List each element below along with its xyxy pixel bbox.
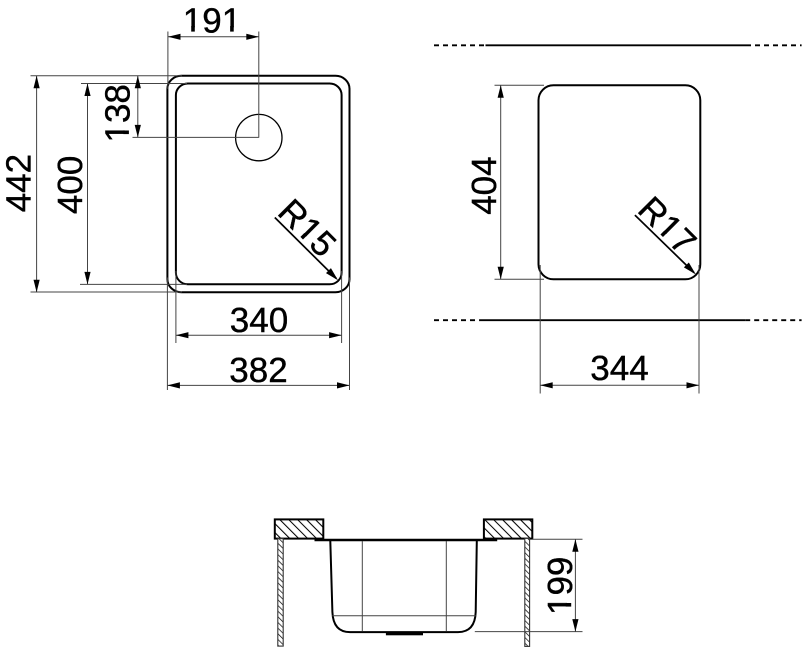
svg-text:442: 442	[0, 154, 39, 212]
svg-text:199: 199	[541, 557, 580, 615]
svg-text:404: 404	[465, 156, 504, 214]
svg-text:344: 344	[590, 349, 648, 388]
svg-text:138: 138	[99, 84, 138, 142]
svg-text:382: 382	[229, 351, 287, 390]
svg-text:400: 400	[51, 156, 90, 214]
svg-text:340: 340	[230, 301, 288, 340]
svg-text:191: 191	[183, 1, 241, 40]
